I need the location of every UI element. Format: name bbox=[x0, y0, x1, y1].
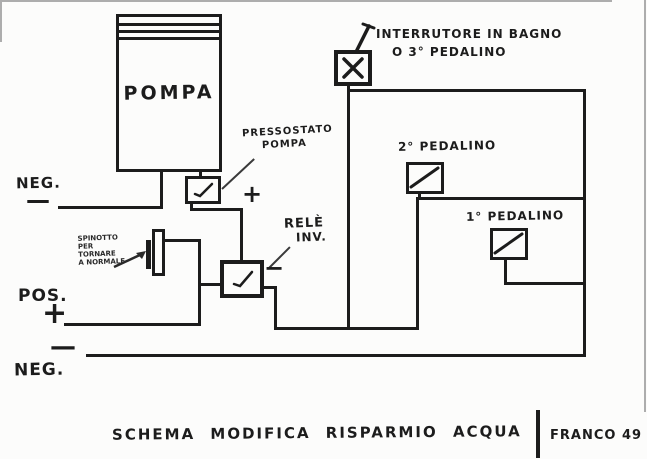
pressure-switch-box bbox=[185, 176, 221, 204]
wire-right-bus bbox=[583, 90, 586, 357]
wire-top-right bbox=[349, 89, 586, 92]
wire-pedal2-line bbox=[416, 197, 586, 200]
pump-label: POMPA bbox=[116, 81, 222, 105]
pump-hatch-line bbox=[119, 37, 219, 40]
wire-neg-bottom bbox=[86, 354, 586, 357]
check-icon bbox=[224, 264, 260, 294]
pedal2-box bbox=[406, 162, 444, 194]
main-switch-label-line1: INTERRUTORE IN BAGNO bbox=[376, 27, 562, 41]
pedal1-label: 1° PEDALINO bbox=[466, 208, 564, 224]
arrow-icon bbox=[112, 248, 150, 270]
wire-pedal2-drop bbox=[416, 200, 419, 330]
relay-box bbox=[220, 260, 264, 298]
neg-bottom-label: NEG. bbox=[14, 360, 65, 381]
caption-signature: FRANCO 49 bbox=[550, 428, 642, 443]
bypass-plug-note-line1: SPINOTTO bbox=[77, 233, 124, 243]
x-switch-icon bbox=[338, 54, 368, 82]
mid-plus-sign: + bbox=[242, 180, 263, 208]
pos-plus-sign: + bbox=[42, 296, 68, 331]
wire-pedal1-line bbox=[504, 282, 586, 285]
wire-pump-left-lead bbox=[160, 172, 163, 209]
check-icon bbox=[188, 179, 218, 201]
pump-hatch-line bbox=[119, 23, 219, 26]
wire-to-relay-top bbox=[240, 208, 243, 262]
relay-label-line2: INV. bbox=[296, 229, 327, 244]
pressure-switch-label-line2: POMPA bbox=[262, 138, 307, 151]
caption-divider bbox=[536, 410, 540, 458]
wire-relay-right-drop bbox=[274, 286, 277, 330]
scan-edge-right bbox=[644, 0, 646, 412]
main-switch-label-line2: O 3° PEDALINO bbox=[392, 45, 507, 59]
scan-edge-top bbox=[0, 0, 612, 2]
diagonal-switch-icon bbox=[409, 165, 440, 190]
caption-title: SCHEMA MODIFICA RISPARMIO ACQUA bbox=[112, 422, 522, 444]
pedal1-box bbox=[490, 228, 528, 260]
pressure-switch-label-line1: PRESSOSTATO bbox=[242, 124, 333, 140]
wire-plug-to-bus bbox=[163, 239, 200, 242]
wire-main-switch-stem bbox=[347, 84, 350, 330]
diagonal-switch-icon bbox=[493, 231, 524, 256]
wire-neg-top bbox=[58, 206, 163, 209]
wire-pos bbox=[64, 323, 200, 326]
neg-bottom-dash: — bbox=[50, 332, 77, 362]
schematic-canvas: POMPA PRESSOSTATO POMPA NEG. — SPINOTTO … bbox=[0, 0, 647, 459]
scan-edge-left bbox=[0, 0, 2, 42]
neg-top-dash: — bbox=[26, 186, 51, 214]
pump-hatch-line bbox=[119, 30, 219, 33]
relay-minus-sign: − bbox=[264, 254, 285, 282]
wire-pressostato-horizontal bbox=[190, 208, 243, 211]
bypass-plug-body bbox=[152, 229, 165, 276]
main-switch-box bbox=[334, 50, 372, 86]
pedal2-label: 2° PEDALINO bbox=[398, 138, 496, 154]
